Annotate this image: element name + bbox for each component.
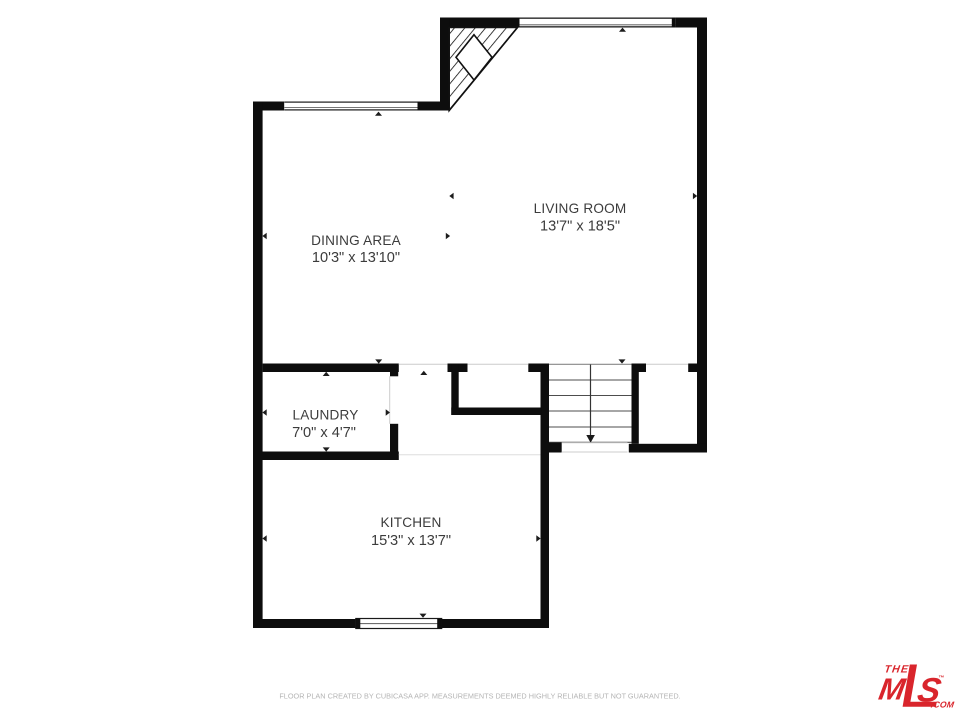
svg-text:LIVING ROOM: LIVING ROOM [534,201,627,216]
svg-text:.COM: .COM [930,700,955,710]
svg-text:™: ™ [939,675,945,682]
svg-text:15'3" x 13'7": 15'3" x 13'7" [371,533,451,549]
svg-text:KITCHEN: KITCHEN [380,515,441,530]
svg-text:LAUNDRY: LAUNDRY [292,408,358,423]
svg-text:7'0" x 4'7": 7'0" x 4'7" [292,425,356,441]
svg-text:FLOOR PLAN CREATED BY CUBICASA: FLOOR PLAN CREATED BY CUBICASA APP. MEAS… [279,692,680,701]
svg-text:DINING AREA: DINING AREA [311,233,402,248]
svg-text:10'3" x 13'10": 10'3" x 13'10" [312,250,400,266]
svg-text:13'7" x 18'5": 13'7" x 18'5" [540,219,620,235]
